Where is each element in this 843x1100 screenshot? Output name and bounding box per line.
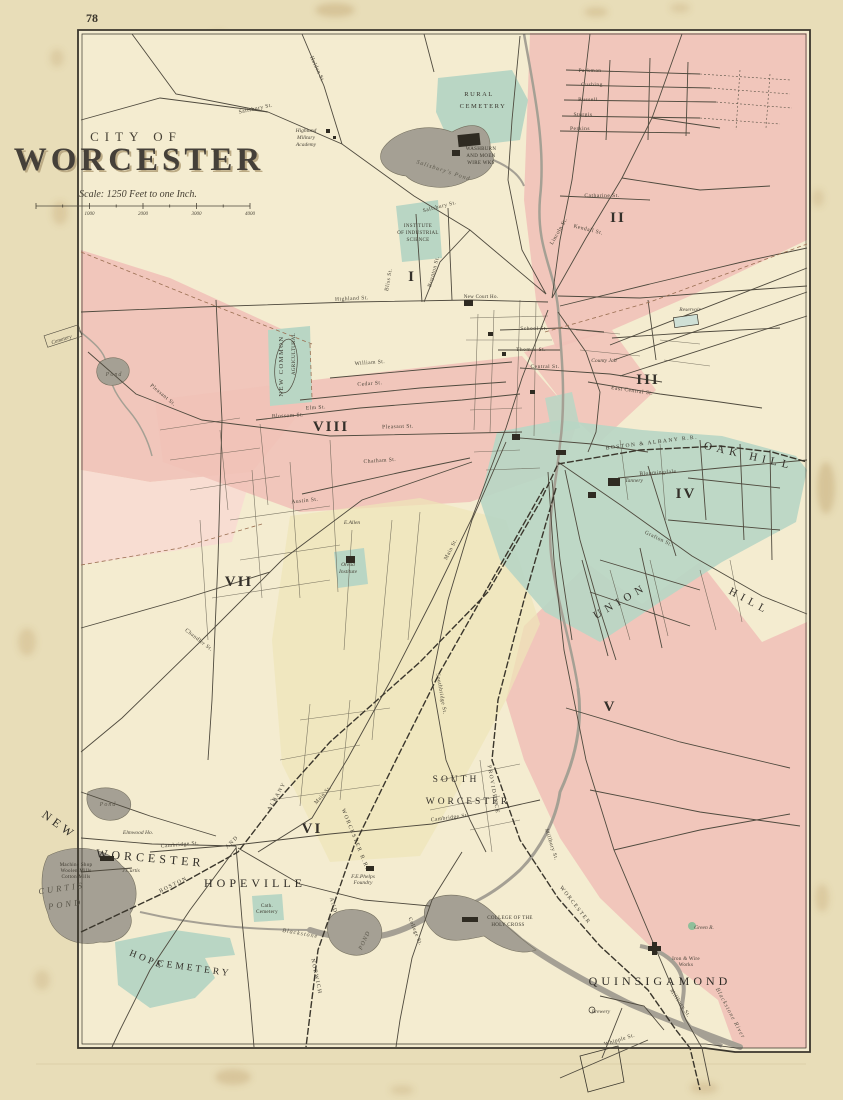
- page-number: 78: [86, 11, 98, 25]
- highland-academy-1-label: Highland: [295, 128, 317, 134]
- rural-cemetery-2-label: CEMETERY: [460, 103, 507, 110]
- map-title: WORCESTER: [14, 142, 265, 178]
- reservoir-label: Reservoir: [678, 307, 701, 313]
- district-ii-label: II: [610, 210, 626, 226]
- washburn-works-1-label: WASHBURN: [466, 147, 497, 152]
- institute-2-label: OF INDUSTRIAL: [397, 231, 439, 236]
- atlas-page: 78 CITY OF WORCESTER WORCESTER Scale: 12…: [0, 0, 843, 1100]
- wire-works-2-label: Works: [679, 963, 693, 968]
- oread-1-label: Oread: [341, 562, 355, 568]
- district-vi-label: VI: [302, 821, 323, 837]
- e-allen-label: E.Allen: [343, 520, 361, 526]
- union-station-mark: [556, 450, 566, 455]
- agricultural-grounds-label: AGRICULTURAL: [292, 333, 297, 375]
- sturgis-st-label: Sturgis: [574, 112, 593, 118]
- highland-academy-3-label: Academy: [295, 142, 317, 148]
- district-v-label: V: [604, 699, 617, 715]
- scale-tick-2000: 2000: [138, 212, 149, 217]
- russell-st-label: Russell: [578, 97, 598, 103]
- scale-note: Scale: 1250 Feet to one Inch.: [79, 189, 197, 200]
- city-hall-mark: [512, 434, 520, 440]
- elmwood-ho-label: Elmwood Ho.: [122, 830, 153, 836]
- mills-3-label: Cotton Mills: [61, 875, 90, 880]
- holy-cross-2-label: HOLY CROSS: [491, 923, 524, 928]
- new-court-house-label: New Court Ho.: [464, 295, 499, 300]
- phelps-2-label: Foundry: [353, 880, 374, 886]
- washburn-works-3-label: WIRE WKS: [467, 161, 494, 166]
- holy-cross-building-mark: [462, 917, 478, 922]
- district-iii-label: III: [636, 372, 660, 388]
- tannery-label: Tannery: [625, 478, 643, 484]
- cath-cemetery-2-label: Cemetery: [256, 910, 278, 915]
- mills-2-label: Woolen Mills: [61, 869, 92, 874]
- catharine-st-label: Catharine St.: [584, 193, 619, 199]
- wire-works-1-label: Iron & Wire: [672, 957, 700, 962]
- j-curtis-label: J.Curtis: [122, 868, 140, 874]
- hopeville-label: HOPEVILLE: [204, 876, 306, 890]
- scale-tick-3000: 3000: [192, 212, 203, 217]
- district-viii-label: VIII: [313, 419, 349, 435]
- holy-cross-1-label: COLLEGE OF THE: [487, 916, 533, 921]
- washburn-factory-mark: [457, 133, 480, 147]
- scale-tick-1000: 1000: [85, 212, 96, 217]
- cushing-st-label: Cushing: [581, 82, 603, 88]
- south-worcester-1-label: SOUTH: [433, 775, 480, 785]
- institute-3-label: SCIENCE: [407, 238, 430, 243]
- district-iv-label: IV: [676, 486, 697, 502]
- quinsigamond-label: QUINSIGAMOND: [589, 974, 732, 988]
- courthouse-mark: [464, 300, 473, 306]
- oread-region: [334, 548, 368, 588]
- cath-cemetery-1-label: Cath.: [261, 904, 273, 909]
- highland-academy-2-label: Military: [296, 135, 316, 141]
- scale-tick-4000: 4000: [245, 212, 256, 217]
- school-st-label: School St.: [520, 326, 548, 332]
- pond-west-label: Pond: [105, 372, 123, 378]
- pond-coes-label: Pond: [99, 802, 117, 808]
- central-st-label: Central St.: [530, 364, 559, 370]
- thomas-st-label: Thomas St.: [516, 347, 546, 353]
- county-jail-label: County Jail: [591, 358, 617, 364]
- parkman-st-label: Parkman: [578, 68, 601, 74]
- rural-cemetery-1-label: RURAL: [464, 91, 494, 98]
- worcester-atlas-map: 78 CITY OF WORCESTER WORCESTER Scale: 12…: [0, 0, 843, 1100]
- washburn-works-2-label: AND MOEN: [466, 154, 495, 159]
- institute-1-label: INSTITUTE: [404, 224, 432, 229]
- oread-2-label: Institute: [338, 569, 358, 575]
- district-vii-label: VII: [225, 574, 254, 590]
- wire-works-mark: [648, 946, 661, 951]
- pleasant-st-2-label: Pleasant St.: [382, 423, 414, 430]
- new-common-label: NEW COMMON: [278, 335, 285, 396]
- brewery-label: Brewery: [592, 1009, 611, 1015]
- green-r-label: Green R.: [694, 925, 714, 931]
- district-i-label: I: [408, 269, 416, 285]
- perkins-st-label: Perkins: [570, 126, 590, 132]
- mills-1-label: Machine Shop: [60, 863, 93, 868]
